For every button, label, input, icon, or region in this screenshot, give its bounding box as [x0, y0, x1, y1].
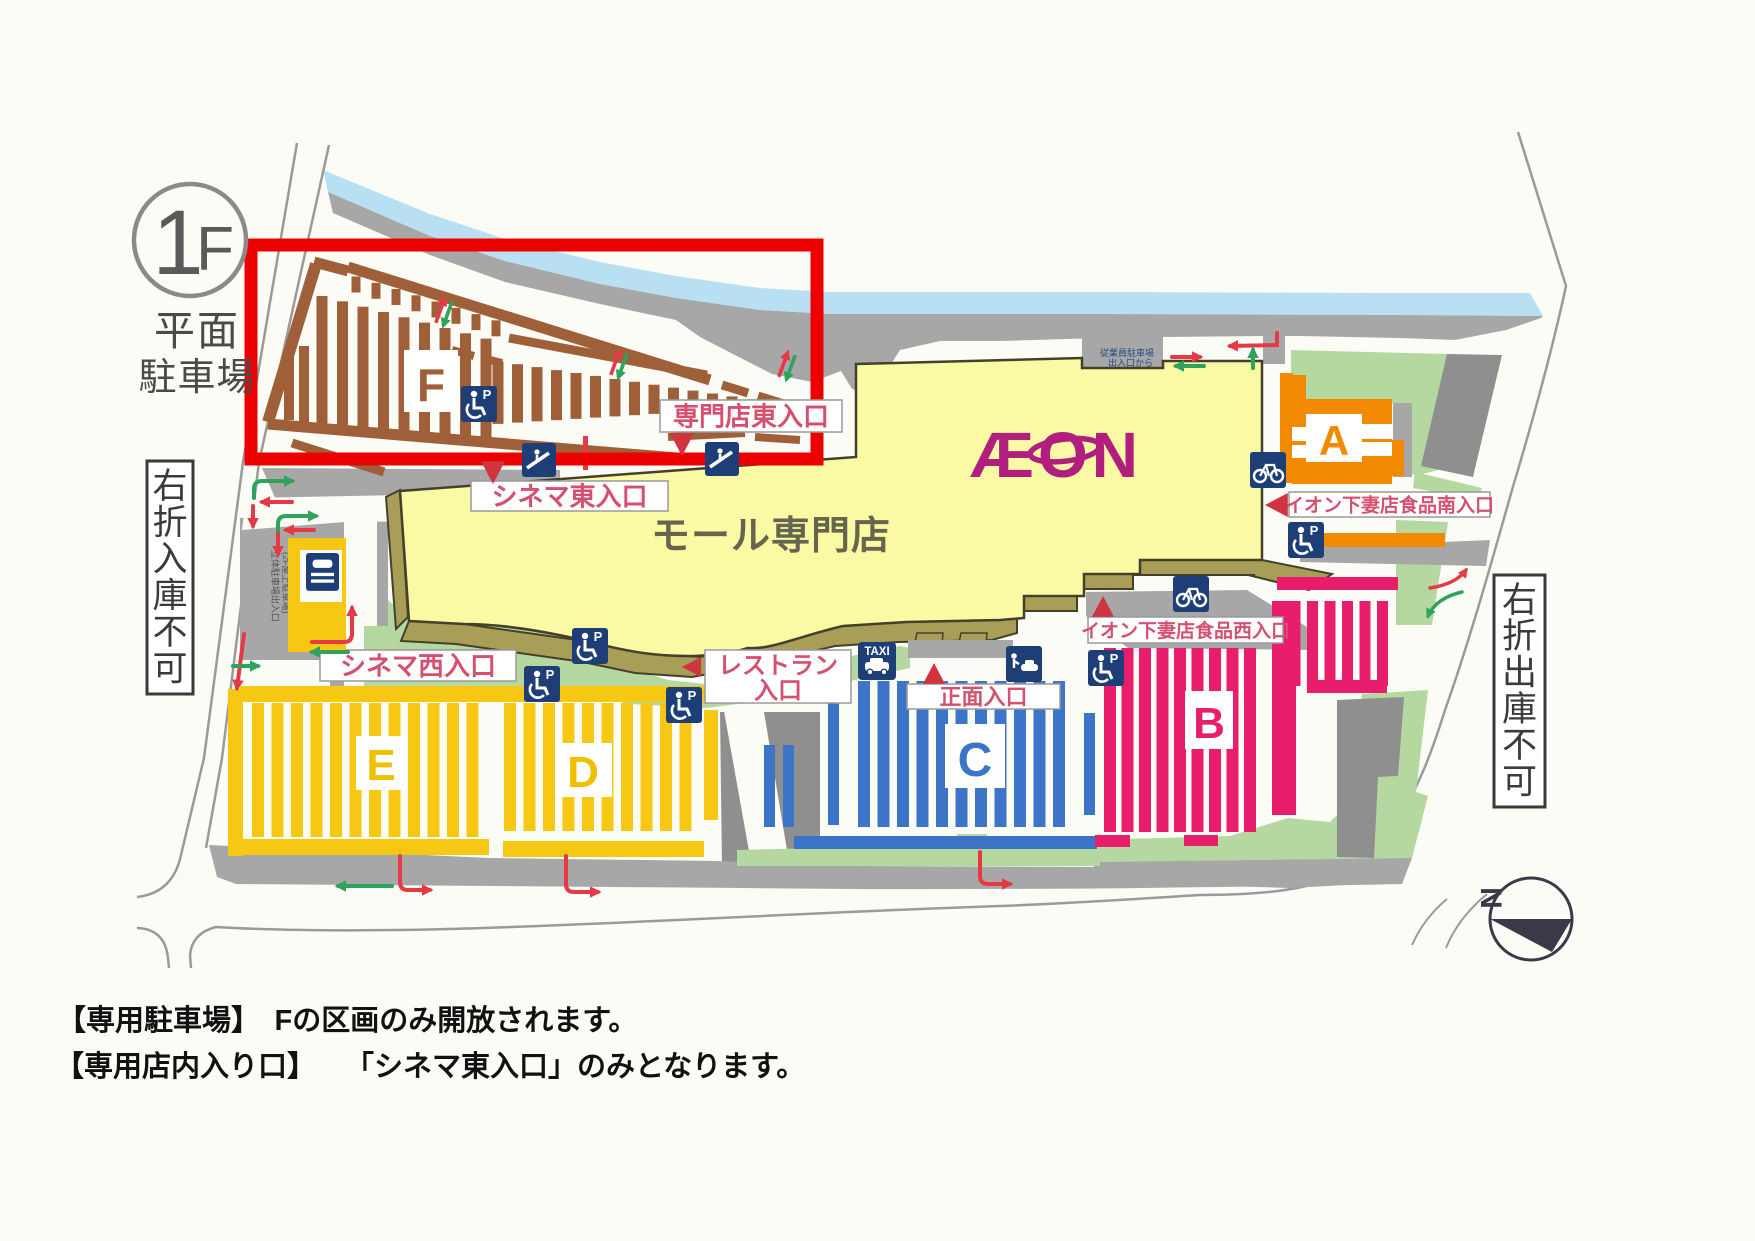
svg-text:シネマ東入口: シネマ東入口 — [491, 481, 647, 511]
svg-text:【専用店内入り口】 「シネマ東入口」のみとなります。: 【専用店内入り口】 「シネマ東入口」のみとなります。 — [55, 1050, 805, 1083]
svg-text:可: 可 — [1502, 763, 1537, 802]
svg-text:レストラン: レストラン — [718, 653, 838, 680]
svg-text:A: A — [1319, 417, 1349, 464]
svg-text:平面: 平面 — [154, 308, 240, 354]
svg-text:モール専門店: モール専門店 — [651, 515, 891, 558]
svg-text:P: P — [688, 688, 697, 703]
svg-text:入: 入 — [152, 540, 187, 579]
svg-text:【専用駐車場】 Fの区画のみ開放されます。: 【専用駐車場】 Fの区画のみ開放されます。 — [57, 1004, 637, 1037]
svg-text:P: P — [1310, 523, 1319, 538]
svg-text:C: C — [958, 734, 993, 787]
svg-text:P: P — [483, 387, 492, 402]
svg-text:従業員駐車場: 従業員駐車場 — [1100, 347, 1154, 358]
svg-text:庫: 庫 — [152, 576, 187, 615]
svg-text:F: F — [196, 215, 234, 284]
svg-text:TAXI: TAXI — [864, 646, 889, 658]
svg-text:E: E — [366, 741, 395, 790]
svg-text:ÆON: ÆON — [970, 419, 1142, 491]
svg-text:出: 出 — [1502, 654, 1537, 693]
svg-text:出入口から: 出入口から — [1108, 357, 1153, 368]
svg-text:可: 可 — [152, 649, 187, 688]
svg-text:右: 右 — [1502, 581, 1537, 620]
svg-text:折: 折 — [1502, 617, 1537, 656]
svg-text:不: 不 — [152, 613, 187, 652]
svg-text:シネマ西入口: シネマ西入口 — [340, 651, 496, 681]
svg-text:右: 右 — [152, 467, 187, 506]
svg-text:イオン下妻店食品西入口: イオン下妻店食品西入口 — [1081, 619, 1290, 642]
svg-text:F: F — [417, 359, 445, 411]
svg-text:折: 折 — [152, 503, 187, 542]
svg-text:不: 不 — [1502, 726, 1537, 765]
svg-text:D: D — [567, 748, 599, 797]
svg-text:入口: 入口 — [754, 678, 802, 705]
svg-text:庫: 庫 — [1502, 690, 1537, 729]
svg-text:B: B — [1193, 699, 1225, 748]
svg-text:P: P — [1110, 651, 1119, 666]
svg-text:P: P — [594, 629, 603, 644]
svg-text:立体駐車場出入口: 立体駐車場出入口 — [270, 550, 281, 622]
svg-text:N: N — [1474, 887, 1507, 909]
svg-text:専門店東入口: 専門店東入口 — [673, 401, 829, 431]
svg-text:駐車場: 駐車場 — [138, 357, 255, 399]
svg-text:イオン下妻店食品南入口: イオン下妻店食品南入口 — [1285, 493, 1494, 516]
svg-text:正面入口: 正面入口 — [939, 684, 1027, 709]
svg-text:P: P — [546, 667, 555, 682]
